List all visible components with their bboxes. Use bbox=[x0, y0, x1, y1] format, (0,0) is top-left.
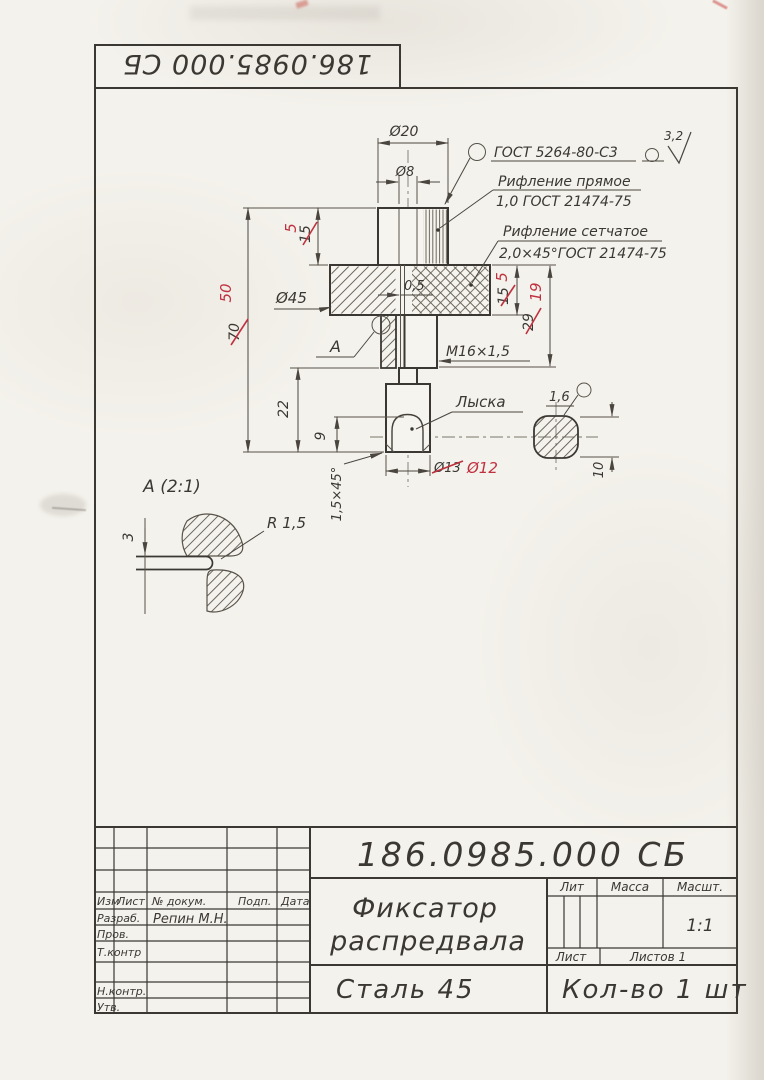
top-stamp-number: 186.0985.000 СБ bbox=[122, 48, 372, 79]
dim-d45: Ø45 bbox=[275, 289, 307, 307]
col-mass: Масса bbox=[611, 880, 649, 894]
dim-1-6: 1,6 bbox=[549, 390, 570, 405]
straight-knurl-area bbox=[423, 210, 447, 264]
dim-d8: Ø8 bbox=[395, 165, 415, 180]
col-sign: Подп. bbox=[238, 895, 271, 908]
knurl-straight-line1: Рифление прямое bbox=[498, 174, 631, 190]
weld-gost-label: ГОСТ 5264-80-С3 bbox=[494, 145, 618, 161]
dim-chamfer: 1,5×45° bbox=[330, 467, 345, 522]
razrab-name: Репин М.Н. bbox=[153, 912, 228, 927]
col-list: Лист bbox=[116, 895, 145, 908]
dim-50-new: 50 bbox=[217, 283, 235, 302]
scanned-drawing-sheet: 186.0985.000 СБ bbox=[0, 0, 764, 1080]
thread-label: М16×1,5 bbox=[446, 344, 510, 360]
neck bbox=[399, 368, 417, 384]
knurl-cross-line1: Рифление сетчатое bbox=[503, 224, 648, 240]
row-razrab: Разраб. bbox=[97, 912, 140, 925]
flat-label: Лыска bbox=[455, 393, 506, 411]
detail-ref-annotation bbox=[316, 316, 390, 357]
dim-9: 9 bbox=[313, 431, 329, 440]
slot-round-end bbox=[206, 557, 213, 570]
titleblock-doc-number: 186.0985.000 СБ bbox=[357, 835, 689, 874]
col-scale: Масшт. bbox=[677, 880, 723, 894]
detail-a-view bbox=[136, 514, 244, 614]
roughness-value: 3,2 bbox=[664, 129, 683, 143]
dim-19-new: 19 bbox=[527, 282, 545, 301]
part-name-line2: распредвала bbox=[329, 926, 526, 957]
dim-radius: R 1,5 bbox=[267, 514, 306, 532]
slotted-collar bbox=[381, 315, 396, 368]
part-name-line1: Фиксатор bbox=[352, 893, 498, 924]
detail-lower-lobe bbox=[207, 570, 244, 612]
threaded-body-m16 bbox=[405, 315, 438, 368]
knurl-straight-line2: 1,0 ГОСТ 21474-75 bbox=[496, 194, 632, 210]
scale-value: 1:1 bbox=[686, 916, 713, 936]
detail-a-title: А (2:1) bbox=[142, 477, 201, 497]
balloon-circle bbox=[577, 383, 591, 397]
detail-upper-lobe bbox=[182, 514, 243, 556]
row-utv: Утв. bbox=[97, 1001, 120, 1014]
dim-3: 3 bbox=[121, 533, 137, 542]
col-lit: Лит bbox=[559, 880, 585, 894]
dim-d12-new: Ø12 bbox=[466, 459, 498, 477]
dim-5-new-right: 5 bbox=[493, 272, 511, 282]
dim-gap: 0,5 bbox=[404, 279, 425, 294]
row-tkontr: Т.контр bbox=[97, 946, 141, 959]
row-nkontr: Н.контр. bbox=[97, 985, 146, 998]
sheets-label: Листов 1 bbox=[629, 950, 686, 964]
disc-hatch-left bbox=[332, 267, 396, 314]
flat-section-view bbox=[534, 416, 578, 458]
quantity-value: Кол-во 1 шт bbox=[562, 975, 748, 1005]
material-value: Сталь 45 bbox=[336, 975, 475, 1005]
part-front-view bbox=[330, 208, 490, 452]
dim-d20: Ø20 bbox=[389, 124, 419, 140]
sheet-label: Лист bbox=[555, 950, 587, 964]
col-doc: № докум. bbox=[151, 895, 206, 908]
drawing-canvas: 186.0985.000 СБ bbox=[0, 0, 764, 1080]
flat-annotation bbox=[416, 412, 523, 429]
knurl-cross-line2: 2,0×45°ГОСТ 21474-75 bbox=[499, 246, 667, 262]
detail-ref-letter: А bbox=[329, 337, 341, 356]
dim-5-new-left: 5 bbox=[282, 223, 300, 233]
col-date: Дата bbox=[280, 895, 310, 908]
dim-10: 10 bbox=[592, 462, 607, 479]
dim-22: 22 bbox=[276, 400, 292, 418]
row-prov: Пров. bbox=[97, 928, 129, 941]
